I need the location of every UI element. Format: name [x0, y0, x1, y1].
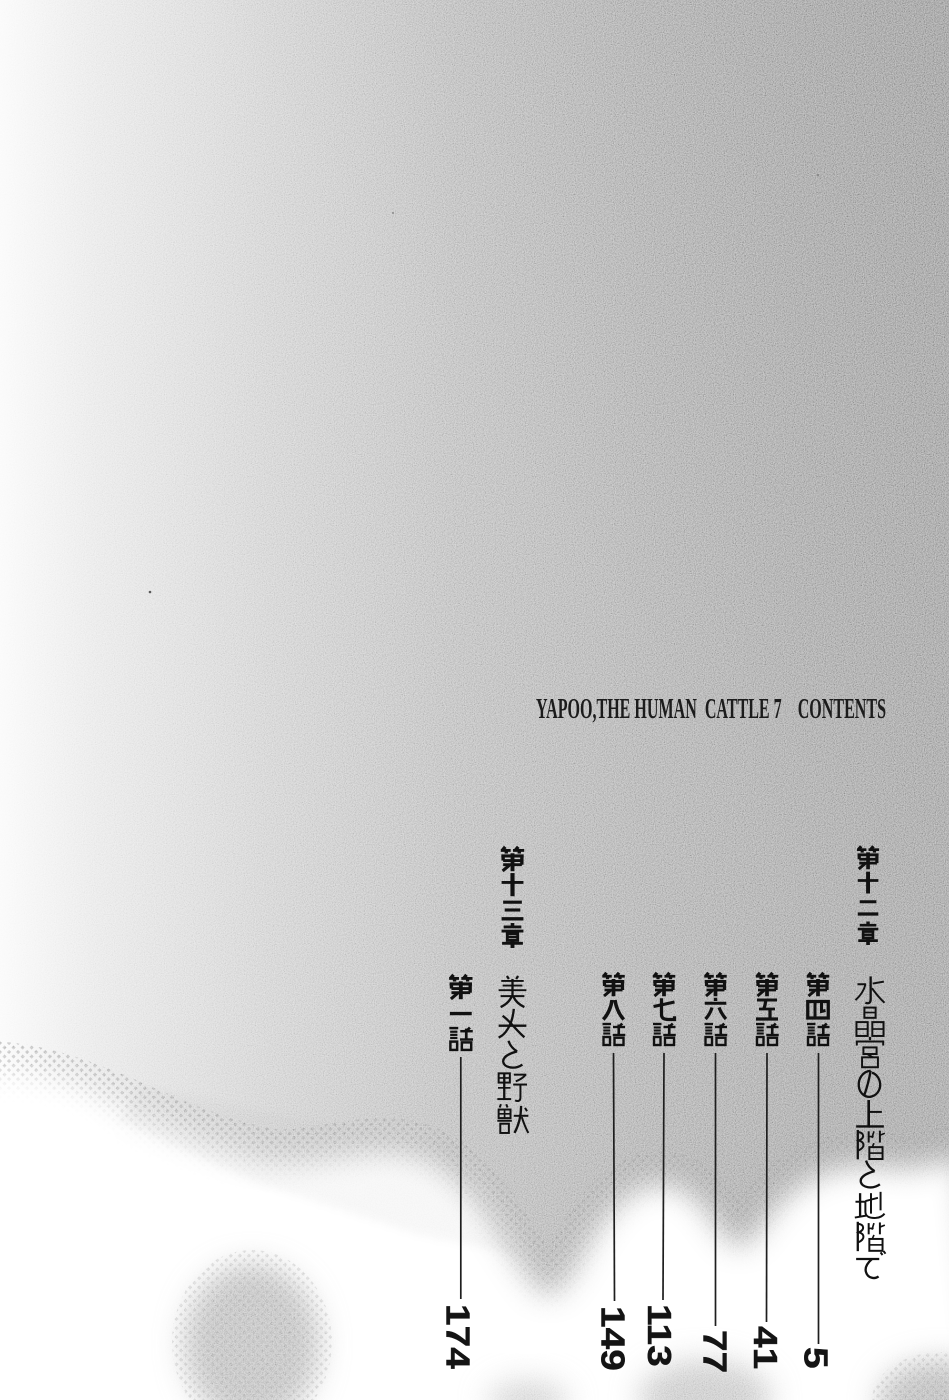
svg-text:5: 5 — [797, 1347, 835, 1369]
svg-text:149: 149 — [594, 1306, 632, 1371]
svg-text:YAPOO,THE HUMAN CATTLE 7 CONTE: YAPOO,THE HUMAN CATTLE 7 CONTENTS — [536, 693, 886, 725]
svg-text:174: 174 — [439, 1304, 477, 1369]
svg-text:113: 113 — [641, 1304, 679, 1367]
svg-text:41: 41 — [747, 1326, 785, 1369]
svg-text:77: 77 — [696, 1330, 734, 1373]
